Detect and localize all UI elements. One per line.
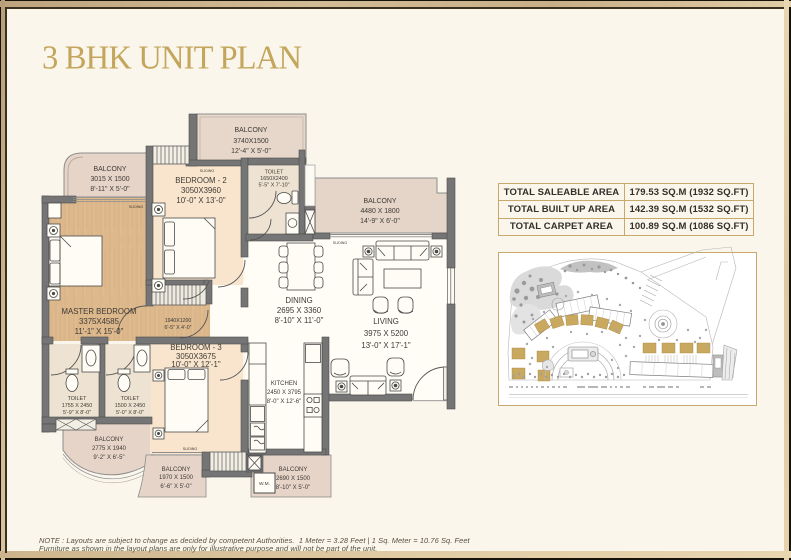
svg-text:5'-0" X 8'-0": 5'-0" X 8'-0" [116, 410, 144, 416]
svg-text:SLIDING: SLIDING [333, 241, 348, 245]
svg-text:10'-0" X 13'-0": 10'-0" X 13'-0" [176, 196, 225, 205]
svg-text:BALCONY: BALCONY [162, 467, 191, 473]
svg-text:11'-1" X 15'-0": 11'-1" X 15'-0" [75, 327, 124, 336]
svg-text:1755 X 2450: 1755 X 2450 [62, 403, 93, 409]
svg-text:BEDROOM - 3: BEDROOM - 3 [170, 343, 222, 352]
svg-text:3975 X 5200: 3975 X 5200 [364, 329, 409, 338]
svg-text:5'-5" X 7'-10": 5'-5" X 7'-10" [258, 183, 289, 189]
svg-text:W.M.: W.M. [259, 481, 270, 487]
svg-text:2695 X 3360: 2695 X 3360 [277, 306, 322, 315]
svg-text:2690 X 1500: 2690 X 1500 [276, 476, 311, 482]
svg-text:8'-11" X 5'-0": 8'-11" X 5'-0" [90, 186, 130, 193]
svg-text:BALCONY: BALCONY [364, 198, 397, 205]
svg-text:BALCONY: BALCONY [94, 166, 127, 173]
svg-text:BEDROOM - 2: BEDROOM - 2 [175, 176, 227, 185]
svg-text:13'-0" X 17'-1": 13'-0" X 17'-1" [361, 341, 410, 350]
svg-text:TOILET: TOILET [68, 396, 87, 402]
svg-text:DINING: DINING [285, 296, 312, 305]
svg-text:3375X4585: 3375X4585 [79, 317, 120, 326]
svg-text:3015 X 1500: 3015 X 1500 [90, 176, 129, 183]
svg-text:1500 X 2450: 1500 X 2450 [115, 403, 146, 409]
svg-text:MASTER BEDROOM: MASTER BEDROOM [62, 307, 137, 316]
svg-text:2775 X 1940: 2775 X 1940 [92, 446, 127, 452]
svg-text:1970 X 1500: 1970 X 1500 [159, 475, 194, 481]
svg-text:6'-5" X 4'-0": 6'-5" X 4'-0" [164, 325, 191, 331]
svg-text:3050X3960: 3050X3960 [181, 186, 222, 195]
svg-text:12'-4" X 5'-0": 12'-4" X 5'-0" [231, 148, 271, 155]
svg-text:BALCONY: BALCONY [235, 127, 268, 134]
svg-text:8'-0" X 12'-6": 8'-0" X 12'-6" [267, 399, 302, 405]
svg-text:BALCONY: BALCONY [279, 467, 308, 473]
svg-text:5'-9" X 8'-0": 5'-9" X 8'-0" [63, 410, 91, 416]
svg-text:14'-9" X 6'-0": 14'-9" X 6'-0" [360, 218, 400, 225]
svg-text:KITCHEN: KITCHEN [271, 381, 297, 387]
svg-text:10'-0" X 12'-1": 10'-0" X 12'-1" [171, 360, 220, 369]
svg-text:2450 X 3795: 2450 X 3795 [267, 390, 302, 396]
svg-text:SLIDING: SLIDING [200, 169, 215, 173]
svg-text:1650X2400: 1650X2400 [260, 176, 288, 182]
svg-text:9'-2" X 6'-5": 9'-2" X 6'-5" [93, 455, 124, 461]
svg-text:BALCONY: BALCONY [95, 437, 124, 443]
svg-text:LIVING: LIVING [373, 317, 399, 326]
svg-text:8'-10" X 11'-0": 8'-10" X 11'-0" [275, 316, 324, 325]
svg-text:8'-10" X 5'-0": 8'-10" X 5'-0" [276, 485, 311, 491]
svg-text:TOILET: TOILET [265, 170, 284, 176]
svg-text:1940X1200: 1940X1200 [165, 318, 192, 324]
svg-text:SLIDING: SLIDING [129, 205, 144, 209]
svg-text:TOILET: TOILET [121, 396, 140, 402]
svg-text:4480 X 1800: 4480 X 1800 [360, 208, 399, 215]
svg-text:SLIDING: SLIDING [183, 447, 198, 451]
svg-text:6'-6" X 5'-0": 6'-6" X 5'-0" [160, 484, 191, 490]
svg-text:3740X1500: 3740X1500 [233, 138, 268, 145]
